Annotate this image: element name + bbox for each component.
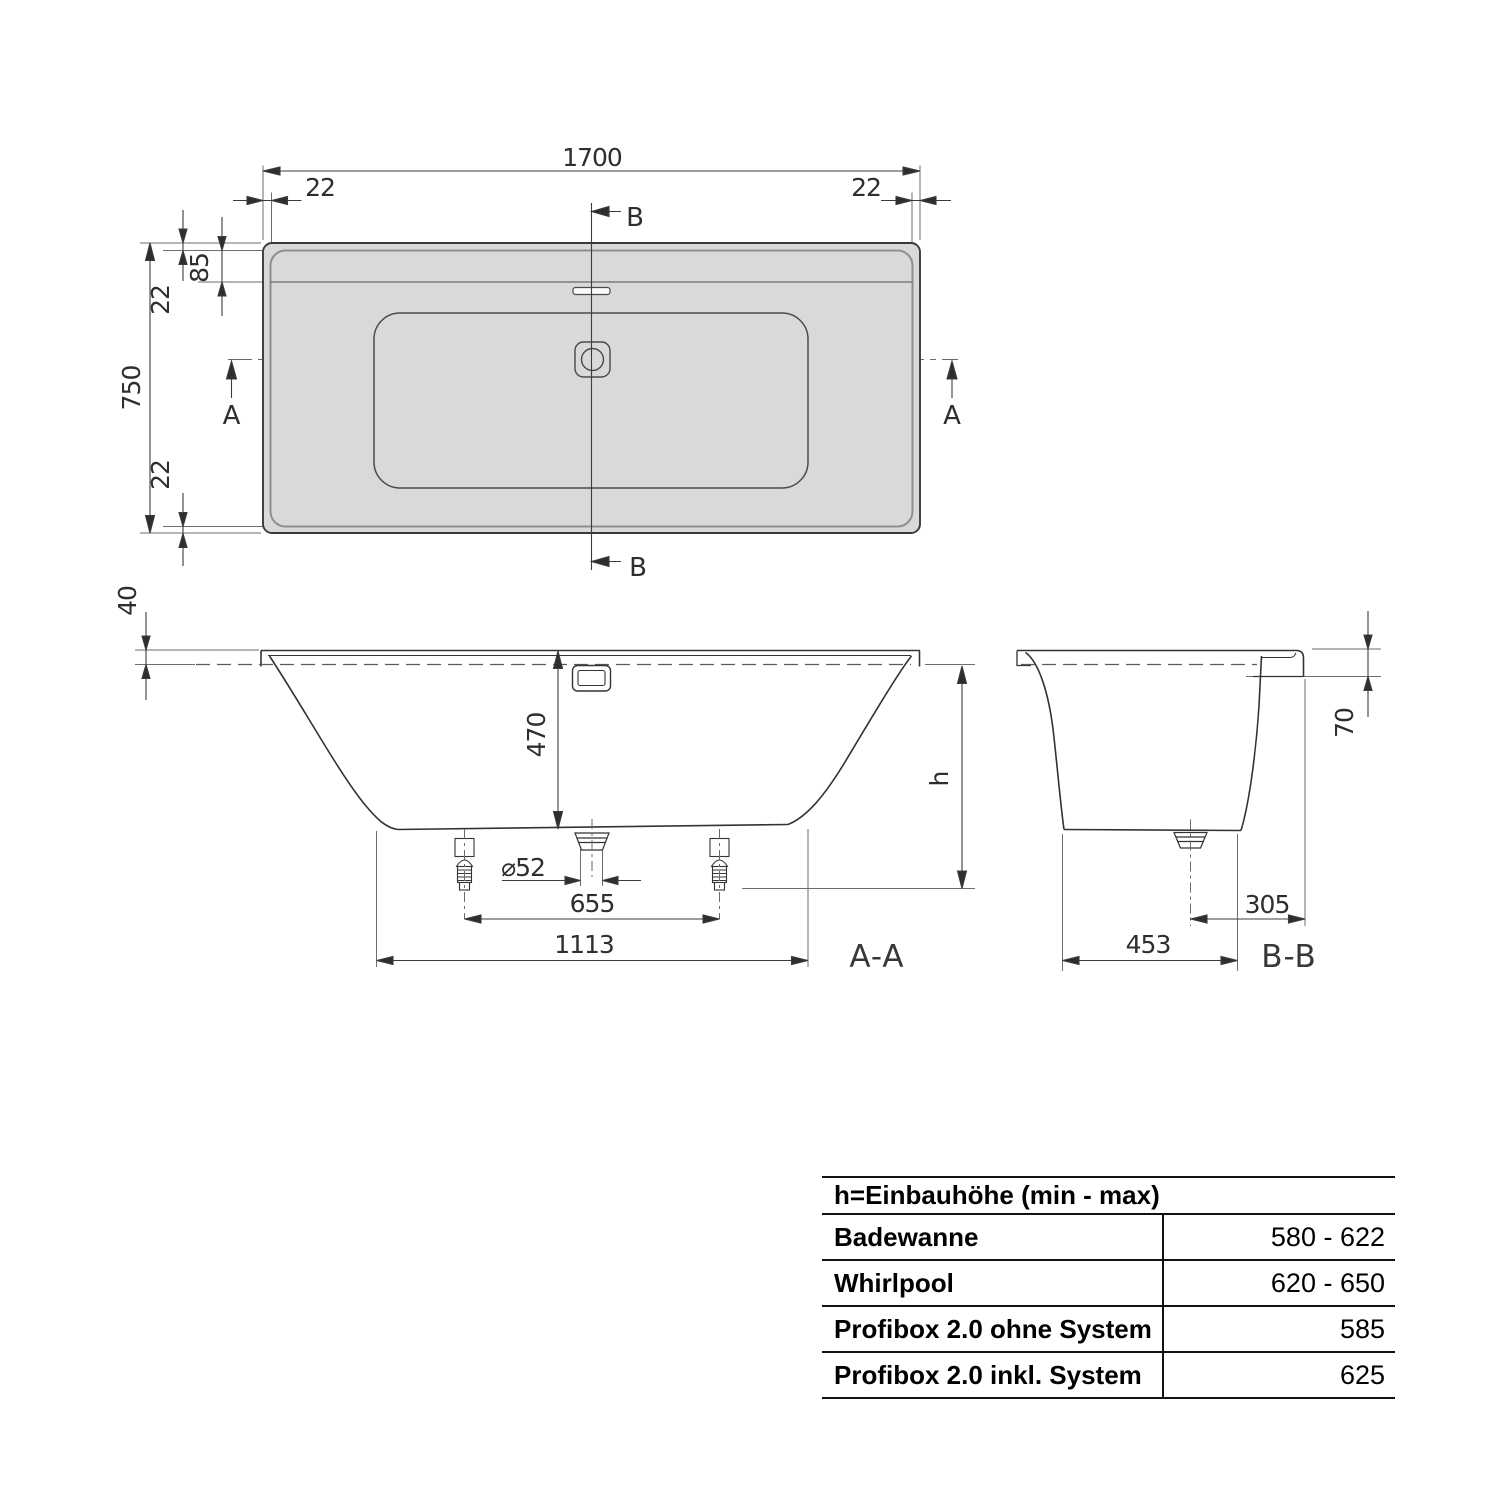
dim-rim-left-label: 22 [305, 173, 335, 202]
technical-drawing-page: 1700 22 22 750 22 85 22 B B A A [0, 0, 1500, 1500]
dim-rim-right-label: 22 [851, 173, 881, 202]
aa-bottom [398, 825, 788, 830]
section-a-label-left: A [223, 401, 241, 431]
table-row-value: 620 - 650 [1162, 1261, 1395, 1305]
dim-drain-offset-label: 305 [1245, 890, 1290, 919]
section-aa-label: A-A [849, 939, 904, 975]
bb-extension-lines [1063, 649, 1382, 971]
dim-rim-height-label: 40 [113, 586, 142, 616]
section-b-label-top: B [626, 203, 644, 233]
table-row: Profibox 2.0 ohne System 585 [822, 1307, 1395, 1353]
section-b-label-bottom: B [629, 553, 647, 583]
bb-wall-right [1241, 656, 1262, 831]
section-a-label-right: A [943, 401, 961, 431]
dim-rim-drop-label: 70 [1330, 708, 1359, 738]
installation-height-table: h=Einbauhöhe (min - max) Badewanne 580 -… [822, 1176, 1395, 1399]
bb-wall-left [1026, 653, 1065, 830]
dim-overall-width-label: 750 [117, 366, 146, 411]
dim-rim-top-label: 22 [146, 285, 175, 315]
section-b-arrow-top [592, 207, 610, 217]
table-header: h=Einbauhöhe (min - max) [822, 1176, 1395, 1215]
plan-view: 1700 22 22 750 22 85 22 B B A A [117, 143, 961, 583]
dim-bottom-width-label: 453 [1126, 930, 1171, 959]
dim-bottom-length-label: 1113 [554, 930, 614, 959]
dim-overall-length-label: 1700 [562, 143, 622, 172]
aa-overflow-fitting [573, 666, 611, 692]
table-row-label: Badewanne [822, 1215, 1162, 1259]
section-bb: 70 305 453 B-B [1017, 611, 1381, 975]
aa-wall-left [270, 656, 399, 830]
bb-drain [1174, 820, 1207, 927]
dim-inner-depth-label: 470 [522, 713, 551, 758]
aa-foot-right [710, 829, 729, 919]
table-row-label: Profibox 2.0 ohne System [822, 1307, 1162, 1351]
section-aa: 40 470 h ⌀52 655 1113 A-A [113, 586, 975, 975]
table-row: Whirlpool 620 - 650 [822, 1261, 1395, 1307]
table-row-value: 585 [1162, 1307, 1395, 1351]
table-row: Profibox 2.0 inkl. System 625 [822, 1353, 1395, 1399]
bb-bottom [1064, 830, 1241, 831]
section-a-arrow-right [947, 361, 957, 379]
dim-feet-spacing-label: 655 [570, 889, 615, 918]
dim-drain-diameter-label: ⌀52 [501, 853, 545, 882]
table-row-value: 625 [1162, 1353, 1395, 1397]
section-a-arrow-left [227, 361, 237, 379]
table-row: Badewanne 580 - 622 [822, 1215, 1395, 1261]
section-bb-label: B-B [1261, 939, 1317, 975]
dim-headrest-label: 85 [185, 253, 214, 283]
aa-wall-right [788, 656, 912, 825]
dim-rim-bottom-label: 22 [146, 460, 175, 490]
table-row-value: 580 - 622 [1162, 1215, 1395, 1259]
table-row-label: Profibox 2.0 inkl. System [822, 1353, 1162, 1397]
table-row-label: Whirlpool [822, 1261, 1162, 1305]
section-b-arrow-bottom [592, 557, 610, 567]
aa-foot-left [455, 829, 474, 919]
bb-tub-profile [1017, 651, 1304, 831]
dim-install-height-label: h [925, 772, 954, 787]
